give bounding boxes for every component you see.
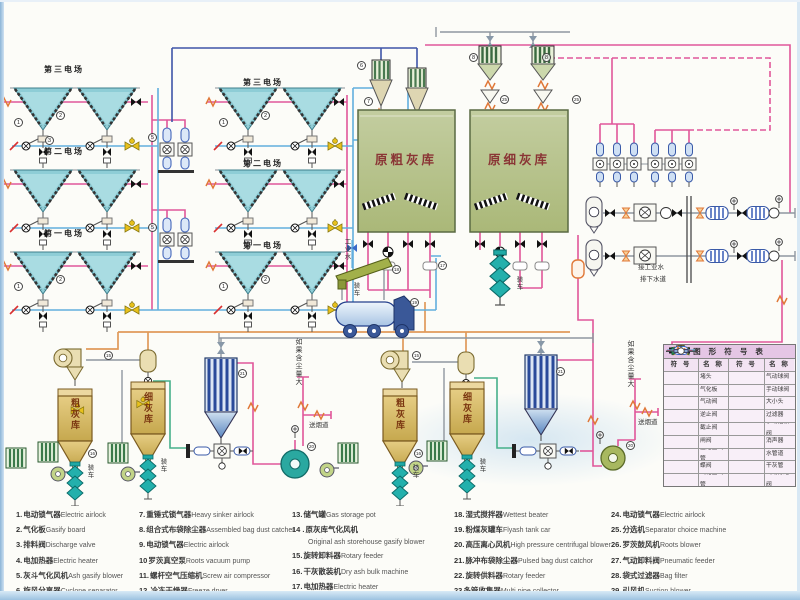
flex-hose-symbol	[664, 461, 699, 473]
pneumatic-diverter-valve-symbol	[729, 474, 765, 486]
ref-number: 8	[542, 53, 551, 62]
loading-label-g2a: 装车	[409, 464, 419, 479]
legend-item: 25.分选机Separator choice machine	[611, 523, 726, 538]
ref-number: 2	[261, 111, 270, 120]
raw-fine-silo	[470, 110, 568, 232]
ref-number: 21	[556, 367, 565, 376]
header-symbol-2: 符 号	[729, 359, 765, 371]
legend-item: 14 .原灰库气化风机Original ash storehouse gasif…	[292, 523, 425, 549]
legend-item: 16.干灰散装机Dry ash bulk machine	[292, 565, 425, 580]
page-edge-top	[0, 0, 800, 2]
symbol-name: 气化板	[699, 385, 729, 397]
process-flow-diagram: 第三电场 第二电场 第一电场 第三电场 第二电场 第一电场 原粗灰库 原细灰库 …	[0, 0, 800, 600]
to-industrial-water-label: 接工业水	[638, 261, 664, 271]
legend-item: 28.袋式过滤器Bag filter	[611, 569, 726, 584]
gasify-air-pipe-symbol	[664, 474, 699, 486]
symbol-row: 气化板 手动球阀	[664, 385, 795, 398]
flyash-tank-truck	[336, 296, 414, 338]
filter-symbol	[729, 410, 765, 422]
legend-column-2: 7.重锤式锁气器Heavy sinker airlock8.组合式布袋除尘器As…	[139, 508, 295, 599]
compressed-air-pipe-symbol	[664, 449, 699, 461]
field-label-a3: 第三电场	[29, 64, 99, 75]
symbol-name: 气化空气管	[699, 474, 729, 486]
loading-label-g1b: 装车	[157, 458, 167, 473]
symbol-name: 干灰管	[765, 461, 794, 473]
symbol-name: 气动阀	[699, 397, 729, 409]
ref-number: 15	[412, 351, 421, 360]
ref-number: 6	[357, 61, 366, 70]
symbol-name: 气动球阀	[765, 372, 794, 384]
legend-item: 3.排料阀Discharge valve	[16, 538, 123, 553]
legend-item: 1.电动锁气器Electric airlock	[16, 508, 123, 523]
ref-number: 3	[45, 136, 54, 145]
legend-item: 7.重锤式锁气器Heavy sinker airlock	[139, 508, 295, 523]
symbol-row: 蝶阀 干灰管	[664, 461, 795, 474]
symbol-row: 气动阀 大小头	[664, 397, 795, 410]
ash-gasify-blowers	[158, 128, 194, 263]
pneumatic-ball-valve-symbol	[729, 372, 765, 384]
if-dust-large-label-2: 如果含尘量大	[625, 340, 635, 388]
legend-item: 20.高压离心风机High pressure centrifugal blowe…	[454, 538, 611, 553]
legend-item: 9.电动锁气器Electric airlock	[139, 538, 295, 553]
loading-label-g1a: 装车	[84, 464, 94, 479]
legend-item: 4.电加热器Electric heater	[16, 554, 123, 569]
legend-item: 18.湿式搅拌器Wettest beater	[454, 508, 611, 523]
legend-item: 5.灰斗气化风机Ash gasify blower	[16, 569, 123, 584]
legend-item: 24.电动锁气器Electric airlock	[611, 508, 726, 523]
coarse-silo-label-1: 粗灰库	[69, 398, 82, 431]
gasify-board-symbol	[664, 385, 699, 397]
industrial-water-label: 工业水	[341, 238, 351, 261]
if-dust-large-label-1: 如果含尘量大	[293, 338, 303, 386]
ref-number: 5	[148, 223, 157, 232]
field-label-a1: 第一电场	[29, 228, 99, 239]
legend-item: 19.粉煤灰罐车Flyash tank car	[454, 523, 611, 538]
ref-number: 5	[148, 133, 157, 142]
center-loading-spout	[490, 250, 510, 305]
ref-number: 1	[14, 118, 23, 127]
reducer-symbol	[729, 397, 765, 409]
legend-item: 11.螺杆空气压缩机Screw air compressor	[139, 569, 295, 584]
manual-slide-valve-symbol	[729, 423, 765, 435]
ref-number: 19	[410, 298, 419, 307]
muffler-symbol	[729, 436, 765, 448]
field-label-b2: 第二电场	[228, 158, 298, 169]
legend-item: 8.组合式布袋除尘器Assembled bag dust catcher	[139, 523, 295, 538]
coarse-silo-label-2: 粗灰库	[394, 398, 407, 431]
symbol-name: 水管道	[765, 449, 794, 461]
spout-loading-label: 装车	[513, 276, 523, 291]
symbol-row: 闸阀 消声器	[664, 436, 795, 449]
symbol-name: 蝶阀	[699, 461, 729, 473]
legend-column-1: 1.电动锁气器Electric airlock2.气化板Gasify board…	[16, 508, 123, 599]
header-name-2: 名 称	[765, 359, 794, 371]
symbol-name: 消声器	[765, 436, 794, 448]
symbol-table-header: 符 号 名 称 符 号 名 称	[664, 359, 795, 372]
raw-coarse-silo-label: 原粗灰库	[366, 149, 446, 168]
ref-number: 8	[469, 53, 478, 62]
plug-symbol	[664, 372, 699, 384]
symbol-table: 图 形 符 号 表 符 号 名 称 符 号 名 称 堵头 气动球阀 气化板 手动…	[663, 344, 796, 487]
ref-number: 2	[261, 275, 270, 284]
symbol-name: 气动分路阀	[765, 474, 794, 486]
legend-item: 22.旋转供料器Rotary feeder	[454, 569, 611, 584]
symbol-name: 手动插板阀	[765, 423, 794, 435]
symbol-name: 大小头	[765, 397, 794, 409]
ref-number: 2	[56, 111, 65, 120]
legend-column-5: 24.电动锁气器Electric airlock25.分选机Separator …	[611, 508, 726, 599]
ref-number: 20	[626, 441, 635, 450]
header-name-1: 名 称	[699, 359, 729, 371]
gate-valve-symbol	[664, 436, 699, 448]
roots-blower-bank	[593, 143, 696, 187]
symbol-row: 压缩空气管 水管道	[664, 449, 795, 462]
legend-column-3: 13.储气罐Gas storage pot14 .原灰库气化风机Original…	[292, 508, 425, 595]
symbol-name: 过滤器	[765, 410, 794, 422]
truck-loading-label: 装车	[350, 282, 360, 297]
vacuum-compressor-rows	[586, 196, 782, 276]
check-valve-symbol	[664, 410, 699, 422]
legend-item: 21.脉冲布袋除尘器Pulsed bag dust catchor	[454, 554, 611, 569]
symbol-name: 逆止阀	[699, 410, 729, 422]
raw-fine-silo-label: 原细灰库	[479, 149, 559, 168]
manual-ball-valve-symbol	[729, 385, 765, 397]
pneumatic-valve-symbol	[664, 397, 699, 409]
header-symbol-1: 符 号	[664, 359, 699, 371]
symbol-name: 截止阀	[699, 423, 729, 435]
page-edge-bottom	[0, 591, 800, 600]
ref-number: 2	[56, 275, 65, 284]
ref-number: 21	[238, 369, 247, 378]
legend-item: 27.气动卸料阀Pneumatic feeder	[611, 554, 726, 569]
ref-number: 25	[572, 95, 581, 104]
ref-number: 16	[88, 449, 97, 458]
symbol-row: 气化空气管 气动分路阀	[664, 474, 795, 486]
globe-valve-symbol	[664, 423, 699, 435]
ref-number: 1	[219, 282, 228, 291]
legend-item: 2.气化板Gasify board	[16, 523, 123, 538]
water-pipe-symbol	[729, 449, 765, 461]
ref-number: 25	[500, 95, 509, 104]
field-label-b1: 第一电场	[228, 240, 298, 251]
symbol-row: 堵头 气动球阀	[664, 372, 795, 385]
ref-number: 16	[414, 449, 423, 458]
equipment-legend: 1.电动锁气器Electric airlock2.气化板Gasify board…	[0, 508, 800, 592]
ref-number: 7	[364, 97, 373, 106]
silo-discharge-fittings	[347, 240, 584, 278]
legend-item: 15.旋转卸料器Rotary feeder	[292, 549, 425, 564]
legend-item: 26.罗茨鼓风机Roots blower	[611, 538, 726, 553]
symbol-name: 压缩空气管	[699, 449, 729, 461]
ref-number: 15	[104, 351, 113, 360]
ref-number: 1	[219, 118, 228, 127]
symbol-row: 截止阀 手动插板阀	[664, 423, 795, 436]
page-edge-left	[0, 0, 4, 600]
field-label-b3: 第三电场	[228, 77, 298, 88]
to-flue-label-1: 送烟道	[309, 419, 329, 429]
symbol-name: 闸阀	[699, 436, 729, 448]
to-flue-label-2: 送烟道	[638, 416, 658, 426]
fine-silo-label-1: 细灰库	[142, 392, 155, 425]
fine-silo-label-2: 细灰库	[461, 392, 474, 425]
field-label-a2: 第二电场	[29, 146, 99, 157]
loading-label-g2b: 装车	[476, 458, 486, 473]
symbol-name: 堵头	[699, 372, 729, 384]
legend-column-4: 18.湿式搅拌器Wettest beater19.粉煤灰罐车Flyash tan…	[454, 508, 611, 599]
ref-number: 17	[438, 261, 447, 270]
symbol-name: 手动球阀	[765, 385, 794, 397]
symbol-row: 逆止阀 过滤器	[664, 410, 795, 423]
legend-item: 13.储气罐Gas storage pot	[292, 508, 425, 523]
ref-number: 1	[14, 282, 23, 291]
to-sewer-label: 排下水道	[640, 273, 666, 283]
legend-item: 10罗茨真空泵Roots vacuum pump	[139, 554, 295, 569]
ref-number: 18	[392, 265, 401, 274]
ref-number: 20	[307, 442, 316, 451]
raw-coarse-silo	[358, 110, 455, 232]
dry-ash-pipe-symbol	[729, 461, 765, 473]
